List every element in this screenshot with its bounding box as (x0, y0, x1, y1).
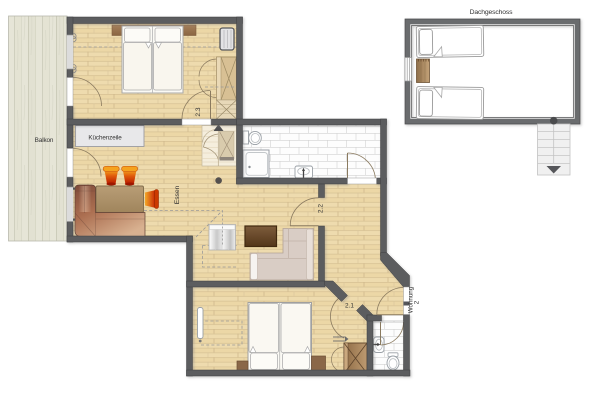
svg-text:2: 2 (413, 300, 420, 304)
svg-text:2.3: 2.3 (195, 107, 202, 116)
svg-text:Dachgeschoss: Dachgeschoss (470, 9, 514, 16)
svg-text:Essen: Essen (174, 185, 181, 204)
svg-text:Küchenzeile: Küchenzeile (88, 135, 122, 142)
svg-text:Balkon: Balkon (35, 137, 54, 144)
svg-text:2.2: 2.2 (318, 204, 325, 213)
svg-text:Wohnung: Wohnung (407, 286, 414, 313)
svg-text:2.1: 2.1 (345, 303, 354, 310)
